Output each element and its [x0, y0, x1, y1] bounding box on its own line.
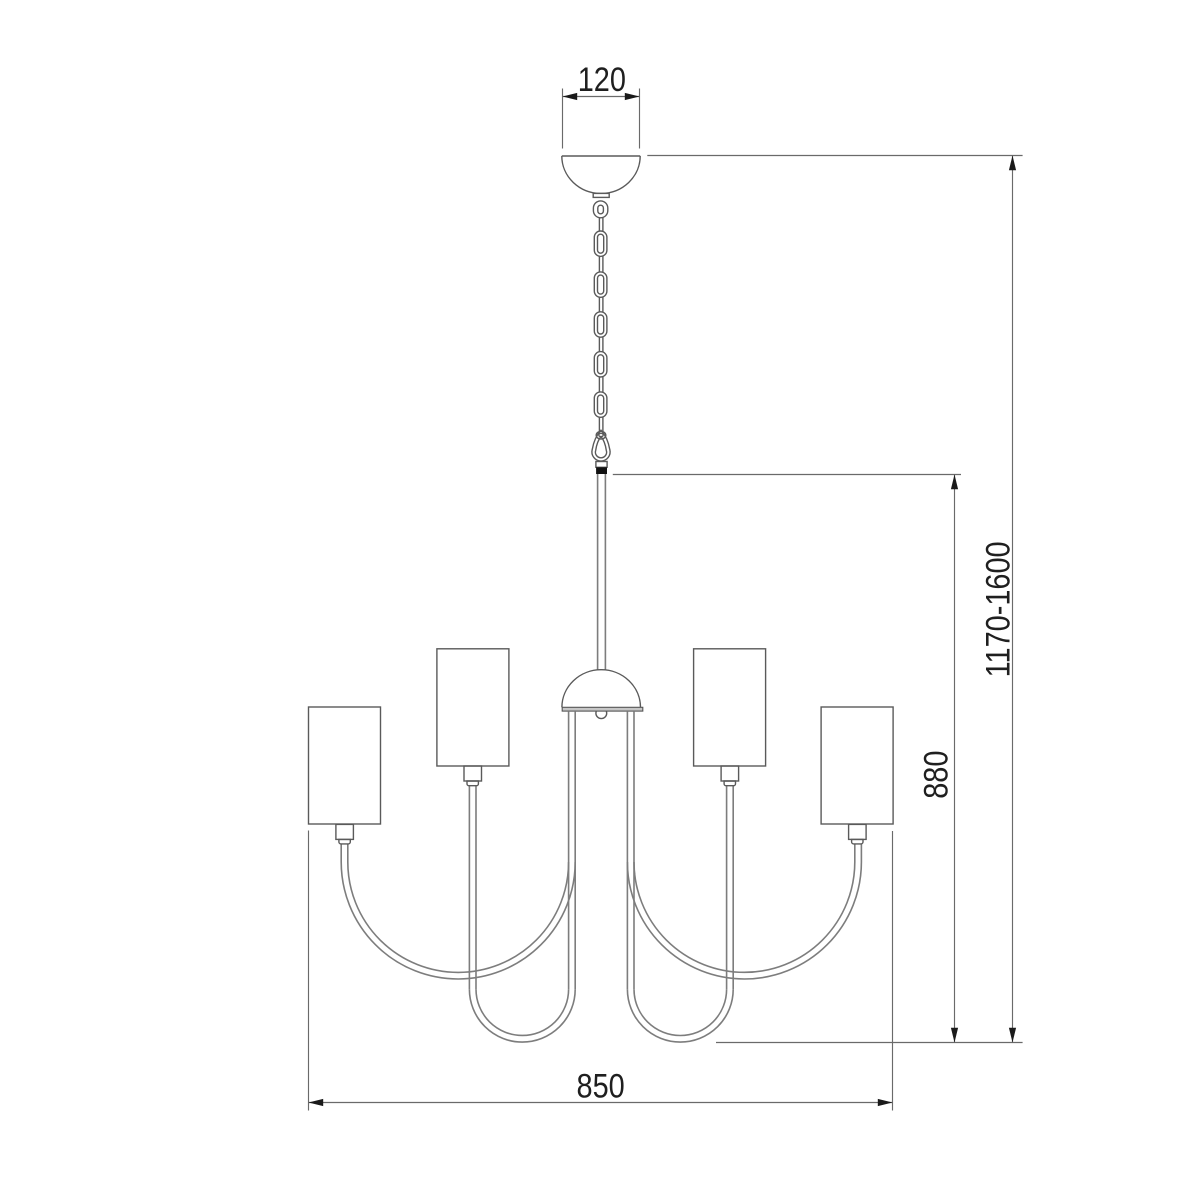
svg-text:880: 880 [916, 751, 955, 799]
svg-text:120: 120 [578, 60, 626, 99]
svg-text:1170-1600: 1170-1600 [978, 541, 1017, 677]
svg-text:850: 850 [576, 1066, 624, 1105]
